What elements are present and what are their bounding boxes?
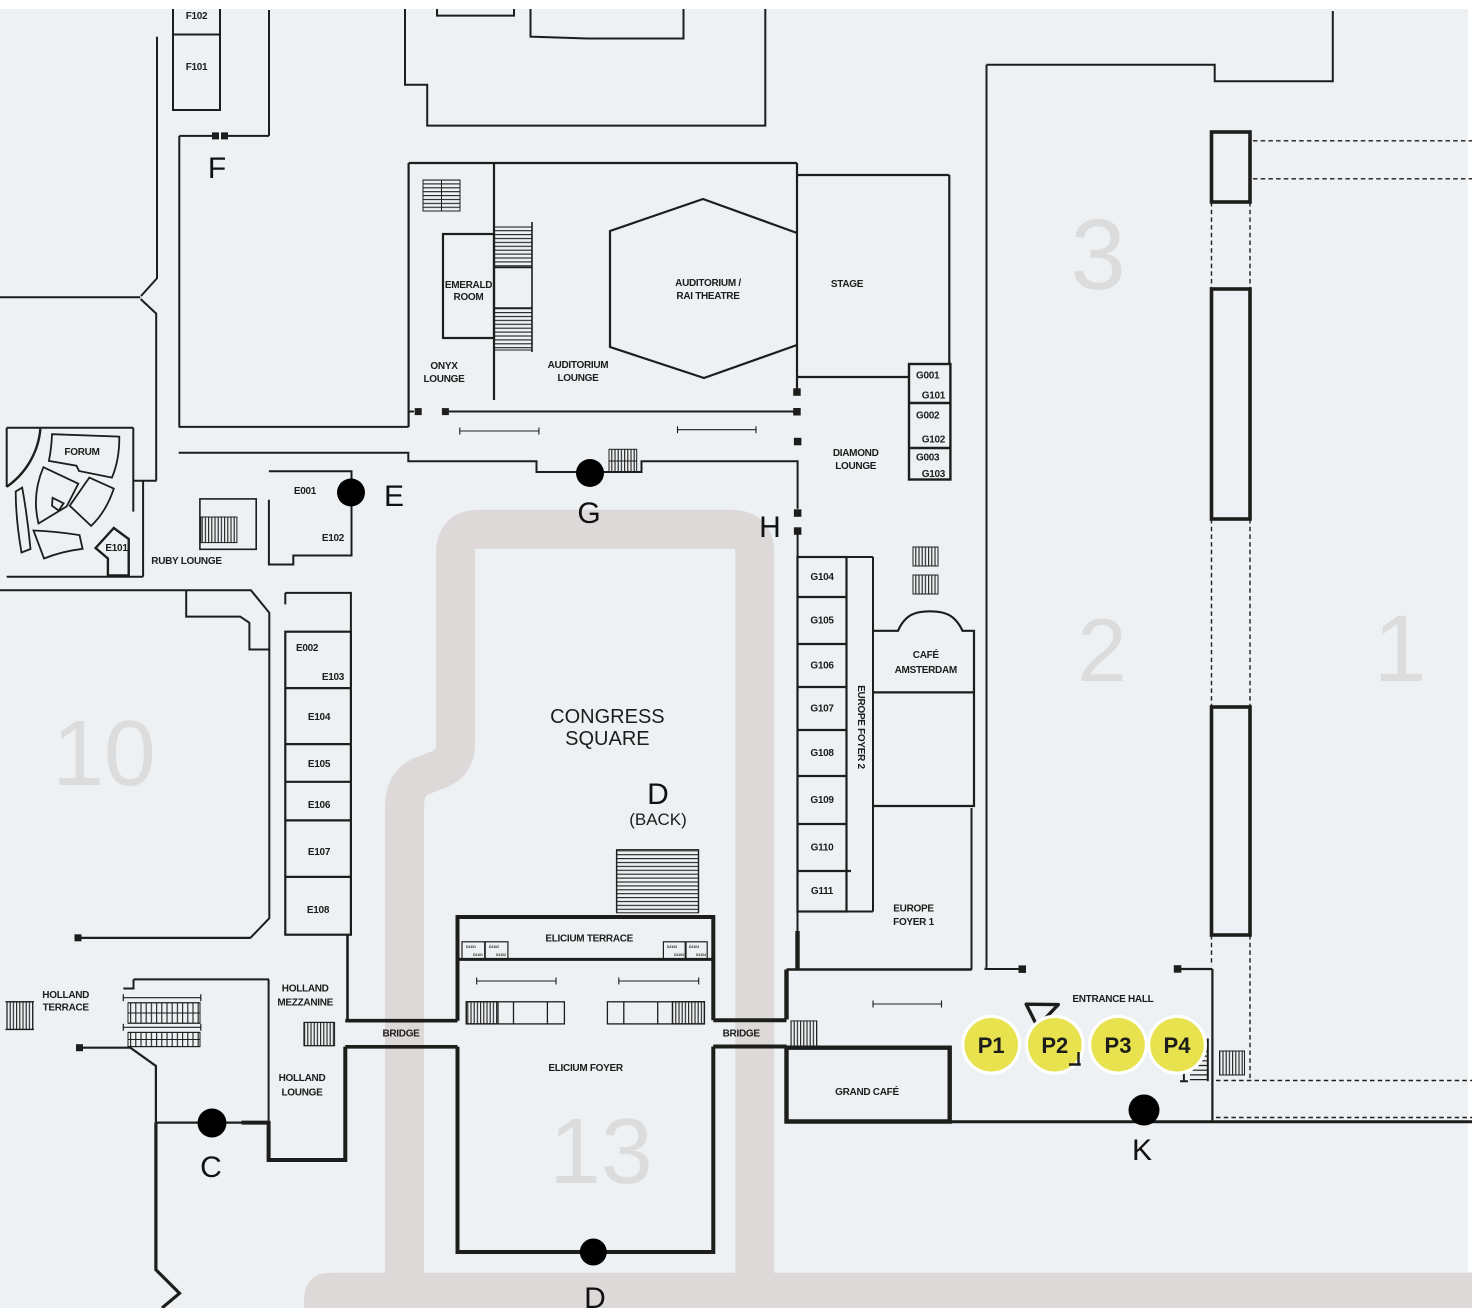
svg-text:D2103: D2103 (667, 945, 677, 949)
svg-text:G103: G103 (922, 469, 946, 480)
svg-text:(BACK): (BACK) (629, 810, 687, 829)
svg-text:BRIDGE: BRIDGE (723, 1029, 761, 1040)
svg-text:1: 1 (1374, 596, 1427, 702)
svg-text:F: F (208, 152, 226, 185)
svg-text:FOYER 1: FOYER 1 (893, 917, 934, 928)
svg-text:G105: G105 (810, 616, 834, 627)
svg-text:E: E (384, 480, 404, 513)
svg-text:ONYX: ONYX (430, 361, 458, 372)
svg-text:K: K (1132, 1134, 1152, 1167)
svg-text:H: H (759, 511, 781, 544)
svg-text:FORUM: FORUM (64, 447, 99, 458)
svg-text:RUBY LOUNGE: RUBY LOUNGE (151, 556, 222, 567)
svg-text:D: D (647, 778, 669, 811)
svg-text:G003: G003 (916, 453, 940, 464)
svg-text:D1103: D1103 (674, 953, 684, 957)
svg-text:3: 3 (1070, 199, 1126, 311)
svg-text:G101: G101 (922, 391, 946, 402)
svg-text:F102: F102 (186, 11, 208, 22)
svg-text:2: 2 (1077, 600, 1127, 700)
svg-text:D2102: D2102 (489, 945, 499, 949)
svg-text:G108: G108 (810, 748, 834, 759)
svg-text:F101: F101 (186, 62, 208, 73)
svg-text:E002: E002 (296, 643, 319, 654)
svg-text:E103: E103 (322, 672, 345, 683)
svg-text:P4: P4 (1164, 1033, 1192, 1058)
svg-text:RAI THEATRE: RAI THEATRE (676, 291, 740, 302)
svg-text:G: G (577, 497, 600, 530)
svg-text:13: 13 (549, 1099, 652, 1203)
svg-text:AUDITORIUM /: AUDITORIUM / (675, 278, 741, 289)
svg-text:LOUNGE: LOUNGE (424, 374, 466, 385)
svg-text:D1102: D1102 (496, 953, 506, 957)
svg-text:ROOM: ROOM (454, 292, 484, 303)
svg-text:P3: P3 (1105, 1033, 1132, 1058)
svg-text:GRAND CAFÉ: GRAND CAFÉ (835, 1085, 899, 1098)
svg-text:HOLLAND: HOLLAND (282, 984, 329, 995)
svg-text:D1104: D1104 (696, 953, 706, 957)
svg-text:G102: G102 (922, 435, 946, 446)
svg-text:STAGE: STAGE (831, 279, 864, 290)
svg-text:CAFÉ: CAFÉ (913, 648, 940, 661)
svg-text:LOUNGE: LOUNGE (282, 1088, 324, 1099)
svg-text:G001: G001 (916, 371, 940, 382)
svg-text:AMSTERDAM: AMSTERDAM (895, 665, 957, 676)
svg-text:E101: E101 (105, 543, 128, 554)
svg-text:C: C (200, 1151, 222, 1184)
svg-text:DIAMOND: DIAMOND (833, 448, 879, 459)
svg-text:LOUNGE: LOUNGE (835, 461, 877, 472)
svg-text:AUDITORIUM: AUDITORIUM (548, 360, 609, 371)
svg-text:E106: E106 (308, 800, 331, 811)
svg-text:EUROPE FOYER 2: EUROPE FOYER 2 (855, 685, 866, 769)
svg-text:E001: E001 (294, 486, 317, 497)
svg-text:G002: G002 (916, 411, 940, 422)
svg-text:ELICIUM TERRACE: ELICIUM TERRACE (545, 934, 633, 945)
svg-text:EMERALD: EMERALD (445, 280, 492, 291)
svg-text:P2: P2 (1041, 1033, 1068, 1058)
svg-text:ELICIUM FOYER: ELICIUM FOYER (548, 1063, 624, 1074)
svg-text:SQUARE: SQUARE (565, 728, 649, 750)
svg-text:LOUNGE: LOUNGE (558, 373, 600, 384)
svg-text:D1101: D1101 (473, 953, 483, 957)
svg-text:ENTRANCE HALL: ENTRANCE HALL (1072, 994, 1153, 1005)
svg-text:G106: G106 (810, 661, 834, 672)
svg-text:E104: E104 (308, 712, 331, 723)
svg-text:TERRACE: TERRACE (43, 1003, 90, 1014)
svg-text:10: 10 (52, 701, 155, 805)
svg-text:G111: G111 (811, 886, 834, 897)
svg-text:MEZZANINE: MEZZANINE (277, 998, 333, 1009)
svg-text:D2101: D2101 (466, 945, 476, 949)
svg-text:D2104: D2104 (689, 945, 699, 949)
svg-text:D: D (584, 1282, 606, 1308)
svg-text:P1: P1 (978, 1033, 1005, 1058)
svg-text:HOLLAND: HOLLAND (279, 1073, 326, 1084)
svg-text:E102: E102 (322, 533, 345, 544)
svg-text:CONGRESS: CONGRESS (550, 706, 664, 728)
svg-text:G109: G109 (810, 795, 834, 806)
svg-text:EUROPE: EUROPE (893, 904, 934, 915)
svg-text:E105: E105 (308, 759, 331, 770)
svg-text:HOLLAND: HOLLAND (42, 990, 89, 1001)
svg-text:BRIDGE: BRIDGE (382, 1029, 420, 1040)
svg-text:G104: G104 (810, 572, 834, 583)
svg-text:G107: G107 (810, 704, 834, 715)
svg-text:G110: G110 (811, 843, 834, 854)
svg-text:E107: E107 (308, 847, 331, 858)
svg-text:E108: E108 (307, 905, 330, 916)
